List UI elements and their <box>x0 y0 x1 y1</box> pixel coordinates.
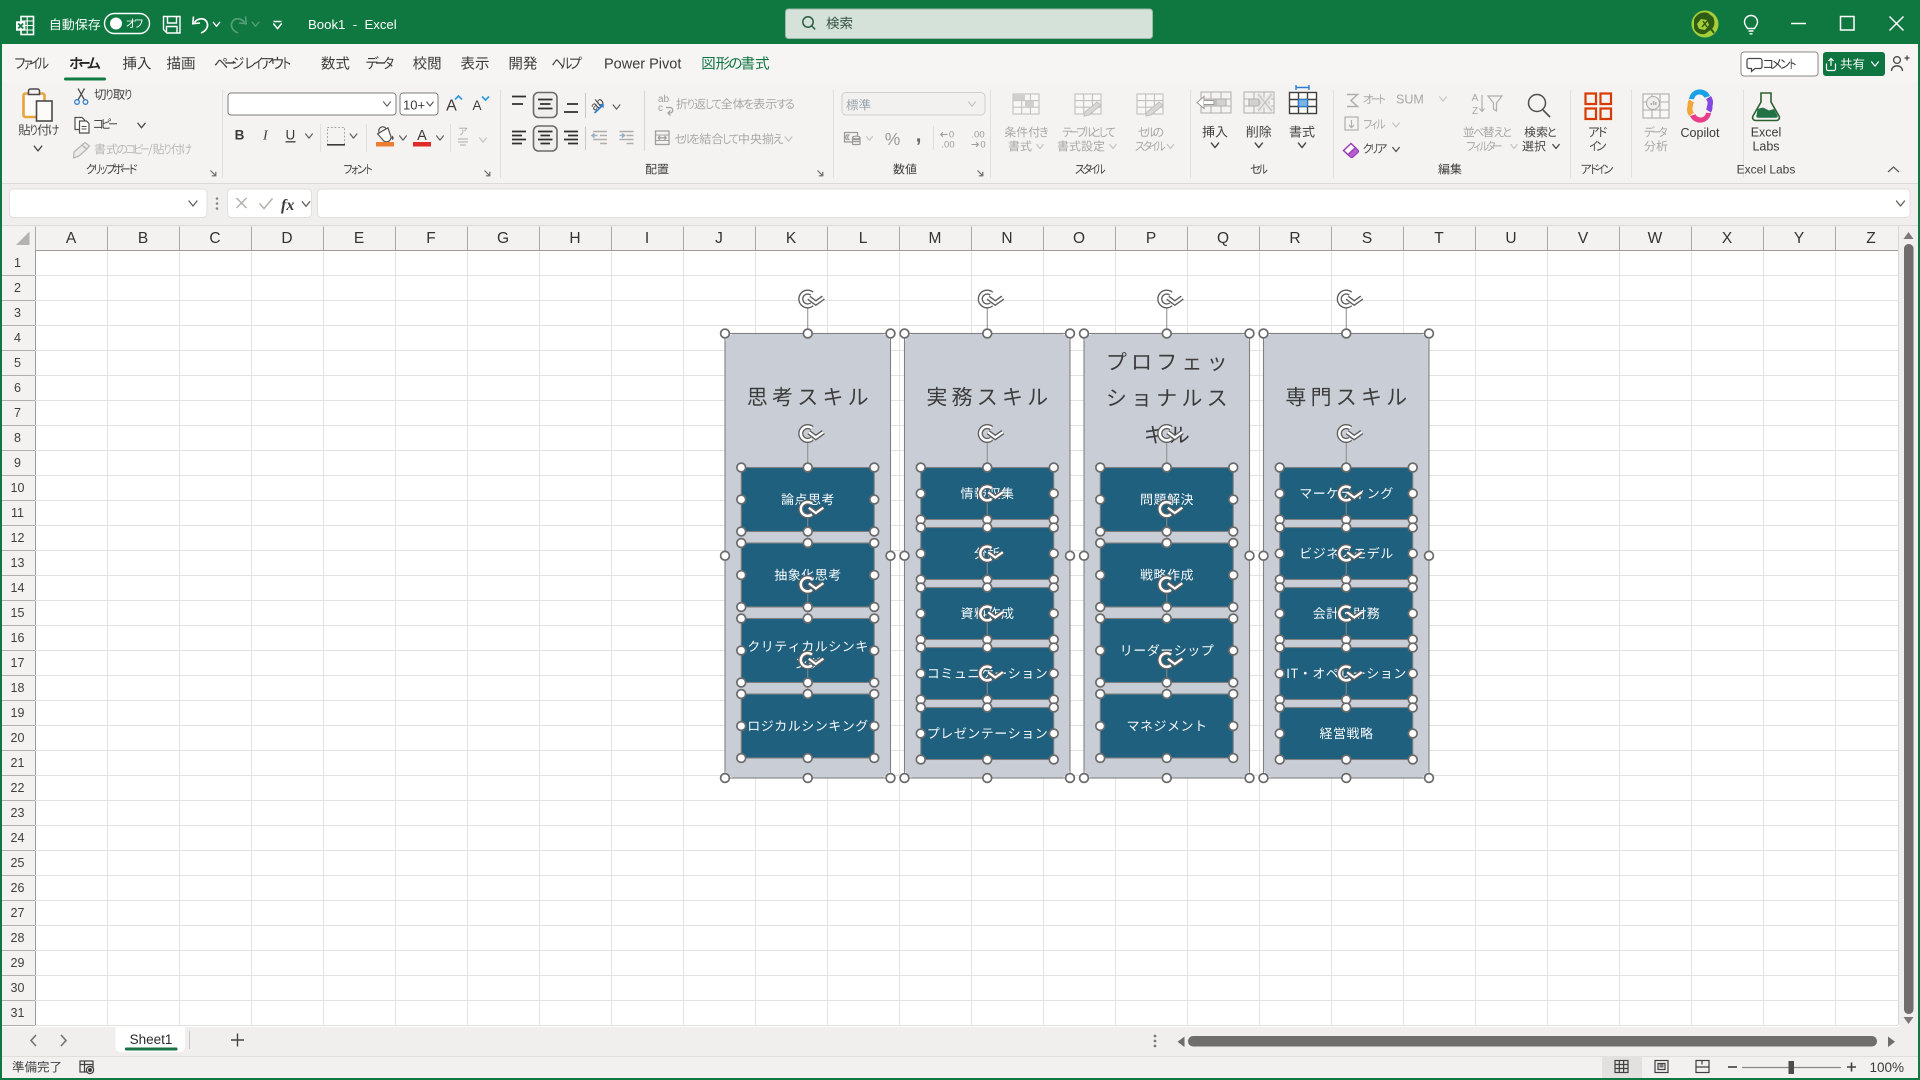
svg-text:B: B <box>138 230 148 247</box>
svg-text:X: X <box>1722 230 1733 247</box>
svg-text:12: 12 <box>11 531 25 545</box>
svg-text:Book1 - Excel: Book1 - Excel <box>308 17 397 32</box>
svg-text:R: R <box>1289 230 1300 247</box>
svg-text:C: C <box>209 230 220 247</box>
svg-text:E: E <box>354 230 364 247</box>
svg-text:10+: 10+ <box>403 97 425 112</box>
svg-text:M: M <box>929 230 942 247</box>
svg-text:N: N <box>1001 230 1012 247</box>
svg-text:10: 10 <box>11 481 25 495</box>
svg-text:22: 22 <box>11 781 25 795</box>
svg-text:14: 14 <box>11 581 25 595</box>
svg-text:29: 29 <box>11 956 25 970</box>
svg-text:Sheet1: Sheet1 <box>130 1032 173 1047</box>
svg-text:Power Pivot: Power Pivot <box>604 57 681 73</box>
svg-text:H: H <box>569 230 580 247</box>
svg-text:4: 4 <box>14 331 21 345</box>
svg-text:100%: 100% <box>1869 1060 1904 1075</box>
svg-text:F: F <box>426 230 435 247</box>
svg-text:fx: fx <box>281 197 294 214</box>
svg-text:17: 17 <box>11 656 25 670</box>
svg-text:Q: Q <box>1217 230 1229 247</box>
svg-text:8: 8 <box>14 431 21 445</box>
svg-text:P: P <box>1146 230 1156 247</box>
svg-text:A: A <box>1472 93 1479 104</box>
svg-text:A: A <box>472 98 481 113</box>
svg-text:30: 30 <box>11 981 25 995</box>
svg-text:T: T <box>1434 230 1444 247</box>
svg-text:K: K <box>786 230 797 247</box>
svg-text:J: J <box>715 230 723 247</box>
svg-text:2: 2 <box>14 281 21 295</box>
svg-text:V: V <box>1578 230 1589 247</box>
svg-text:Excel Labs: Excel Labs <box>1737 163 1796 177</box>
svg-text:Copilot: Copilot <box>1681 126 1720 140</box>
svg-text:9: 9 <box>14 456 21 470</box>
svg-text:O: O <box>1073 230 1085 247</box>
svg-text:21: 21 <box>11 756 25 770</box>
svg-text:.00: .00 <box>941 140 954 151</box>
svg-text:Z: Z <box>1472 106 1478 117</box>
svg-text:0: 0 <box>980 140 985 151</box>
svg-text:20: 20 <box>11 731 25 745</box>
svg-text:L: L <box>859 230 868 247</box>
svg-text:25: 25 <box>11 856 25 870</box>
svg-text:Z: Z <box>1866 230 1875 247</box>
svg-text:A: A <box>66 230 77 247</box>
svg-text:S: S <box>1362 230 1372 247</box>
svg-text:28: 28 <box>11 931 25 945</box>
svg-text:Y: Y <box>1794 230 1804 247</box>
svg-text:D: D <box>281 230 292 247</box>
svg-text:A: A <box>417 128 427 144</box>
svg-text:13: 13 <box>11 556 25 570</box>
svg-text:U: U <box>1505 230 1516 247</box>
svg-text:Excel: Excel <box>1751 126 1782 140</box>
svg-text:27: 27 <box>11 906 25 920</box>
svg-text:Labs: Labs <box>1752 140 1779 154</box>
svg-text:,: , <box>916 124 922 147</box>
svg-text:I: I <box>645 230 649 247</box>
svg-text:B: B <box>235 128 245 143</box>
svg-text:7: 7 <box>14 406 21 420</box>
svg-text:3: 3 <box>14 306 21 320</box>
svg-text:c: c <box>658 103 663 114</box>
svg-text:23: 23 <box>11 806 25 820</box>
svg-text:1: 1 <box>14 256 21 270</box>
svg-text:26: 26 <box>11 881 25 895</box>
svg-text:16: 16 <box>11 631 25 645</box>
svg-text:6: 6 <box>14 381 21 395</box>
svg-text:W: W <box>1648 230 1663 247</box>
svg-text:31: 31 <box>11 1006 25 1020</box>
svg-text:5: 5 <box>14 356 21 370</box>
svg-text:U: U <box>286 128 296 143</box>
svg-text:19: 19 <box>11 706 25 720</box>
svg-text:11: 11 <box>11 506 24 520</box>
svg-text:15: 15 <box>11 606 25 620</box>
svg-text:24: 24 <box>11 831 25 845</box>
svg-text:SUM: SUM <box>1396 93 1424 107</box>
svg-text:G: G <box>497 230 509 247</box>
svg-text:18: 18 <box>11 681 25 695</box>
svg-text:%: % <box>885 129 901 149</box>
